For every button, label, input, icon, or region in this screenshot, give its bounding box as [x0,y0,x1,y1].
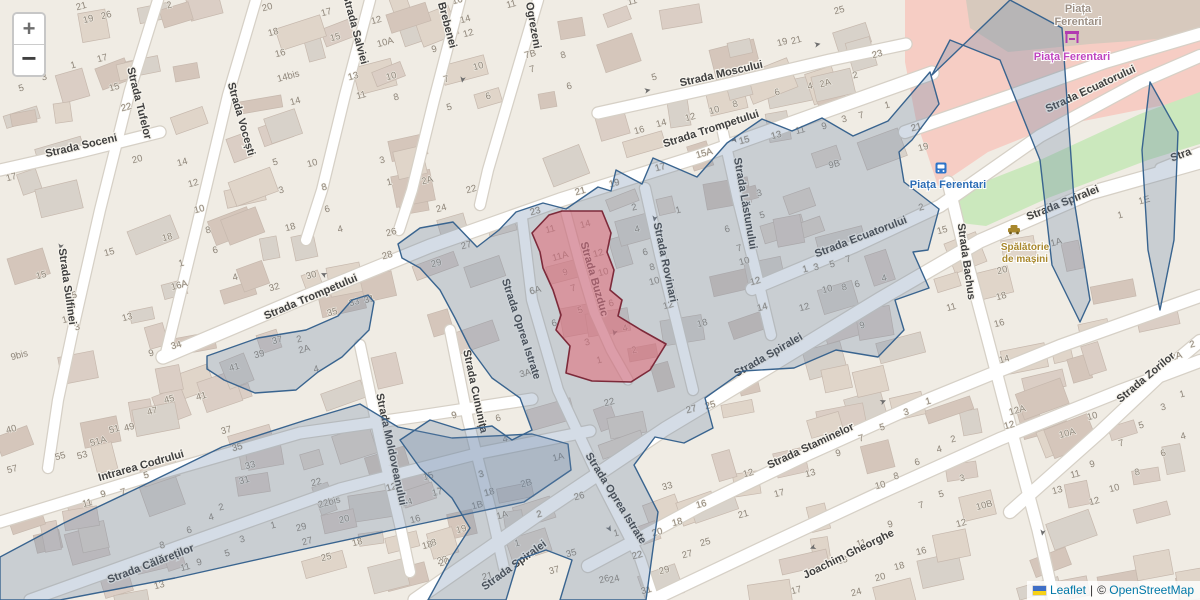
map-canvas[interactable]: ➤➤➤➤➤➤➤➤➤➤➤➤➤2119171513522622201816A1513… [0,0,1200,600]
leaflet-link[interactable]: Leaflet [1050,583,1086,597]
zoom-in-button[interactable]: + [14,14,44,45]
building [959,409,982,436]
zoom-out-button[interactable]: − [14,45,44,75]
car-wash-poi-label: Spălătorie [1001,242,1050,253]
attribution-separator: | [1090,583,1093,597]
bus-stop-icon [936,163,947,174]
building [558,17,585,39]
building [259,236,280,261]
zoom-control: + − [12,12,46,77]
building [1064,480,1091,508]
attribution-bar: Leaflet|© OpenStreetMap [1027,581,1200,600]
building [155,364,183,393]
piata-ferentari-area-label-label: Piața [1065,3,1092,15]
copyright-prefix: © [1097,583,1109,597]
ukraine-flag-icon [1033,586,1046,595]
building [53,102,72,124]
piata-ferentari-area-label-label: Ferentari [1054,16,1101,28]
car-wash-poi-label: de mașini [1002,254,1048,265]
piata-ferentari-market-label: Piața Ferentari [1034,51,1110,63]
map-tiles: ➤➤➤➤➤➤➤➤➤➤➤➤➤2119171513522622201816A1513… [0,0,1200,600]
piata-ferentari-bus-stop-label: Piața Ferentari [910,179,986,191]
openstreetmap-link[interactable]: OpenStreetMap [1109,583,1194,597]
building [538,91,557,109]
